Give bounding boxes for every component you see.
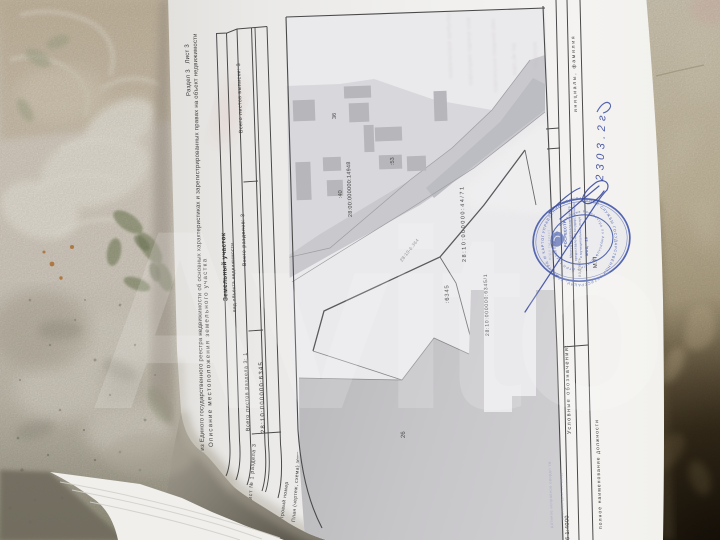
svg-text:2303.2г: 2303.2г [594,111,608,182]
svg-text:Avito: Avito [88,178,658,463]
svg-text:тм длиное: тм длиное [532,41,538,68]
svg-text:36: 36 [332,113,338,119]
svg-text::53: :53 [390,157,396,165]
